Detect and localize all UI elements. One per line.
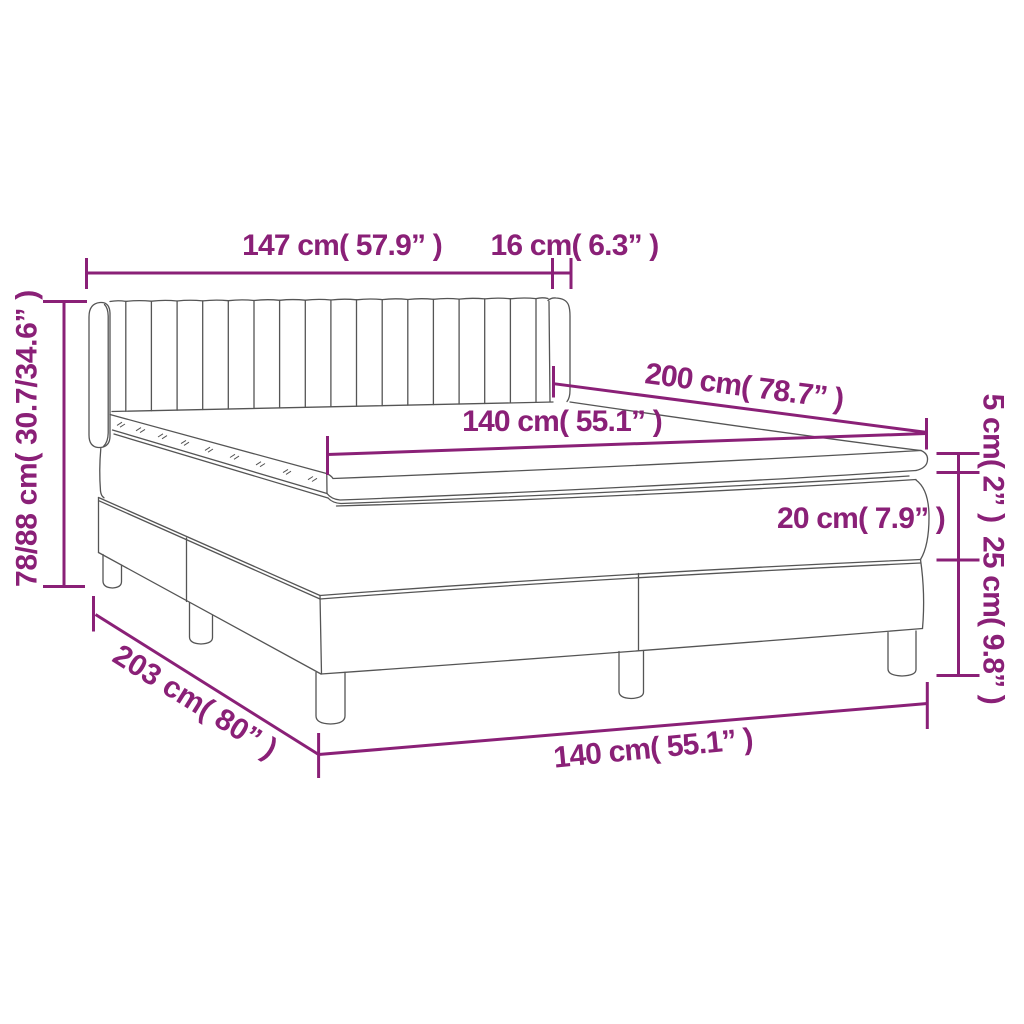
svg-text:140 cm( 55.1” ): 140 cm( 55.1” ) [552, 723, 754, 775]
svg-text:16 cm( 6.3” ): 16 cm( 6.3” ) [490, 229, 658, 262]
svg-text:147 cm( 57.9” ): 147 cm( 57.9” ) [242, 229, 442, 262]
svg-text:25 cm( 9.8” ): 25 cm( 9.8” ) [977, 536, 1010, 704]
svg-text:5 cm( 2” ): 5 cm( 2” ) [977, 394, 1010, 523]
svg-text:78/88 cm( 30.7/34.6” ): 78/88 cm( 30.7/34.6” ) [11, 290, 44, 587]
svg-text:140 cm( 55.1” ): 140 cm( 55.1” ) [462, 405, 662, 438]
svg-text:203 cm( 80” ): 203 cm( 80” ) [107, 638, 283, 765]
svg-text:20 cm( 7.9” ): 20 cm( 7.9” ) [777, 502, 945, 535]
